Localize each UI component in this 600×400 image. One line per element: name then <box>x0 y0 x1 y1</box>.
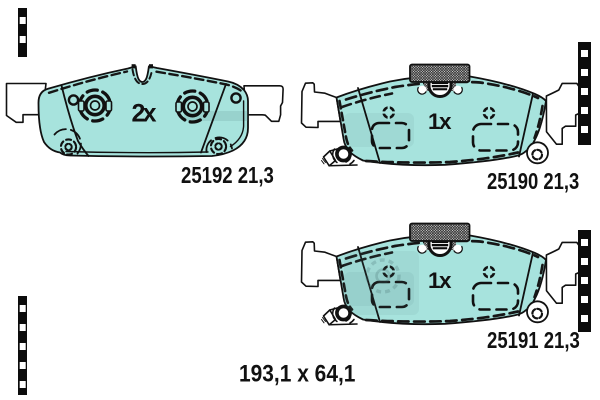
svg-text:25191 21,3: 25191 21,3 <box>487 328 580 354</box>
svg-text:25192 21,3: 25192 21,3 <box>181 163 274 189</box>
svg-text:25190 21,3: 25190 21,3 <box>487 169 579 195</box>
svg-text:2x: 2x <box>132 100 157 128</box>
svg-text:1x: 1x <box>428 109 452 134</box>
svg-text:193,1 x 64,1: 193,1 x 64,1 <box>239 359 356 387</box>
